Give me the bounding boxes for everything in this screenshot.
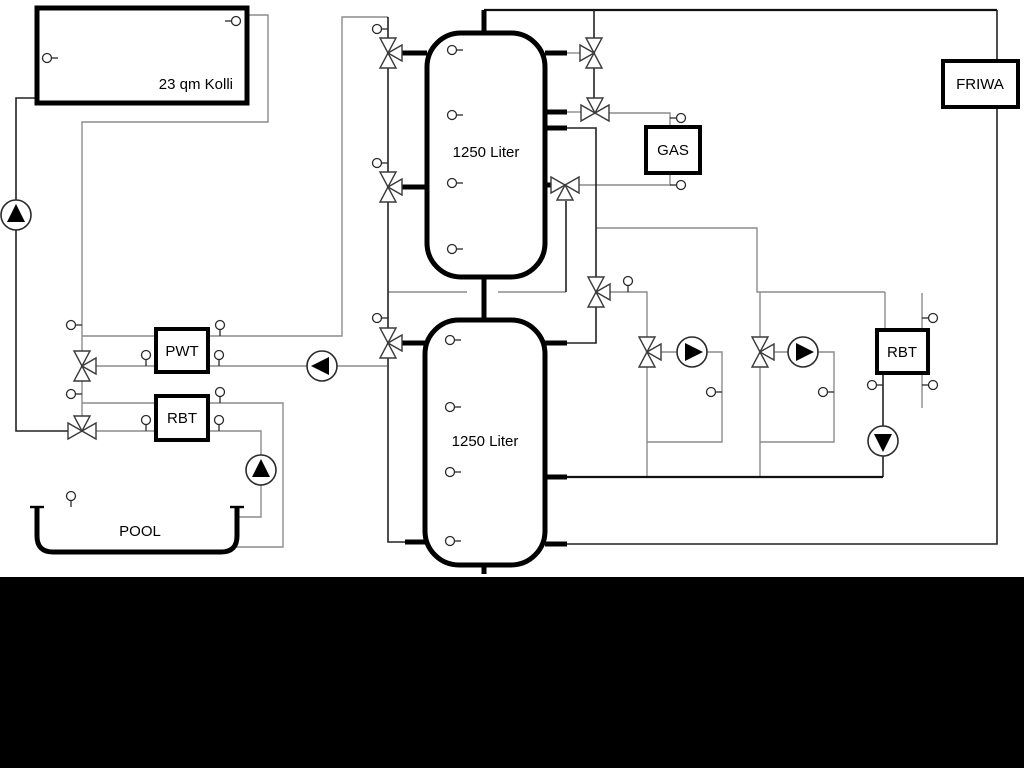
pwt-charge-pump-icon <box>307 351 337 381</box>
schematic-page: 23 qm Kolli 1250 Liter 1250 Liter GAS FR… <box>0 0 1024 768</box>
buffer-tank-top-label: 1250 Liter <box>453 144 520 161</box>
fresh-water-station-label: FRIWA <box>956 76 1004 93</box>
hydraulic-schematic: 23 qm Kolli 1250 Liter 1250 Liter GAS FR… <box>0 0 1024 768</box>
heating-circuit-1-pump-icon <box>677 337 707 367</box>
buffer-tank-bottom-label: 1250 Liter <box>452 433 519 450</box>
rbt-left-label: RBT <box>167 410 197 427</box>
footer-band <box>0 577 1024 768</box>
rbt-right-label: RBT <box>887 344 917 361</box>
solar-pump-icon <box>1 200 31 230</box>
pool-pump-icon <box>246 455 276 485</box>
rbt-circuit-pump-icon <box>868 426 898 456</box>
pool-label: POOL <box>119 523 161 540</box>
collector-label: 23 qm Kolli <box>159 76 233 93</box>
gas-boiler-label: GAS <box>657 142 689 159</box>
heating-circuit-2-pump-icon <box>788 337 818 367</box>
pwt-label: PWT <box>165 343 198 360</box>
